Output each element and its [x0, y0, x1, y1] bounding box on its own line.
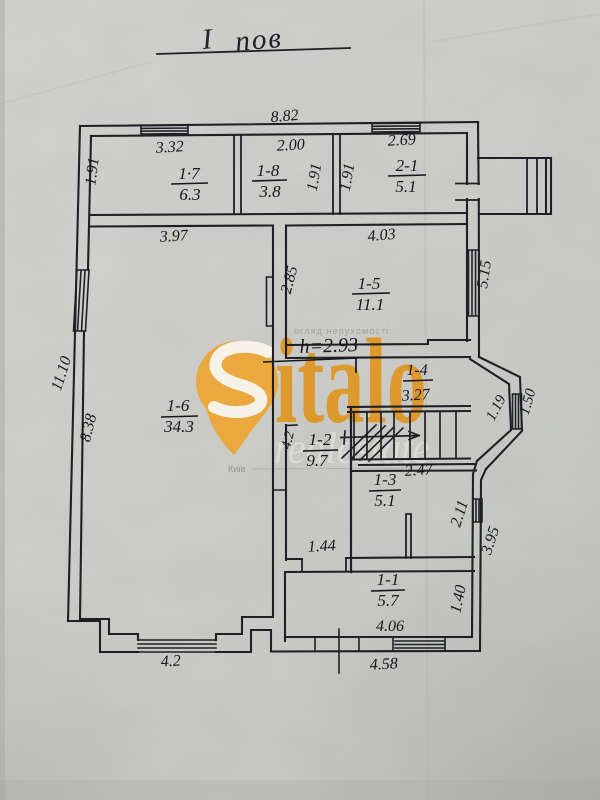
svg-text:3.97: 3.97 [158, 227, 189, 246]
svg-text:3.32: 3.32 [154, 138, 184, 156]
svg-text:h=2.93: h=2.93 [299, 334, 358, 358]
svg-text:8.82: 8.82 [270, 107, 299, 126]
svg-text:2.47: 2.47 [404, 461, 434, 480]
svg-text:1.91: 1.91 [82, 157, 102, 187]
svg-text:34.3: 34.3 [163, 417, 194, 436]
svg-text:1-4: 1-4 [406, 362, 427, 379]
svg-text:4.03: 4.03 [367, 226, 396, 245]
svg-text:1-5: 1-5 [358, 274, 381, 293]
svg-text:2.00: 2.00 [276, 136, 305, 154]
svg-text:Київ: Київ [228, 464, 246, 474]
svg-text:6.3: 6.3 [179, 185, 200, 204]
svg-text:3.27: 3.27 [400, 386, 431, 405]
svg-text:5.1: 5.1 [395, 177, 416, 196]
svg-text:9.7: 9.7 [306, 451, 329, 470]
svg-text:1-8: 1-8 [257, 161, 280, 180]
svg-text:1-1: 1-1 [377, 570, 400, 589]
svg-text:1.44: 1.44 [307, 537, 336, 555]
svg-text:пов: пов [234, 22, 284, 58]
svg-text:1-6: 1-6 [167, 396, 190, 415]
svg-text:1·7: 1·7 [178, 164, 201, 183]
svg-text:11.1: 11.1 [356, 295, 385, 314]
svg-text:3.8: 3.8 [258, 182, 281, 201]
svg-text:5.1: 5.1 [374, 491, 395, 510]
svg-text:4.58: 4.58 [369, 655, 398, 673]
svg-text:5.7: 5.7 [377, 591, 400, 610]
svg-text:1-3: 1-3 [374, 470, 397, 489]
svg-text:2.69: 2.69 [387, 131, 416, 149]
svg-text:1-2: 1-2 [309, 430, 332, 449]
svg-text:4.2: 4.2 [160, 652, 181, 670]
svg-text:2-1: 2-1 [396, 156, 419, 175]
svg-text:4.06: 4.06 [376, 618, 404, 635]
